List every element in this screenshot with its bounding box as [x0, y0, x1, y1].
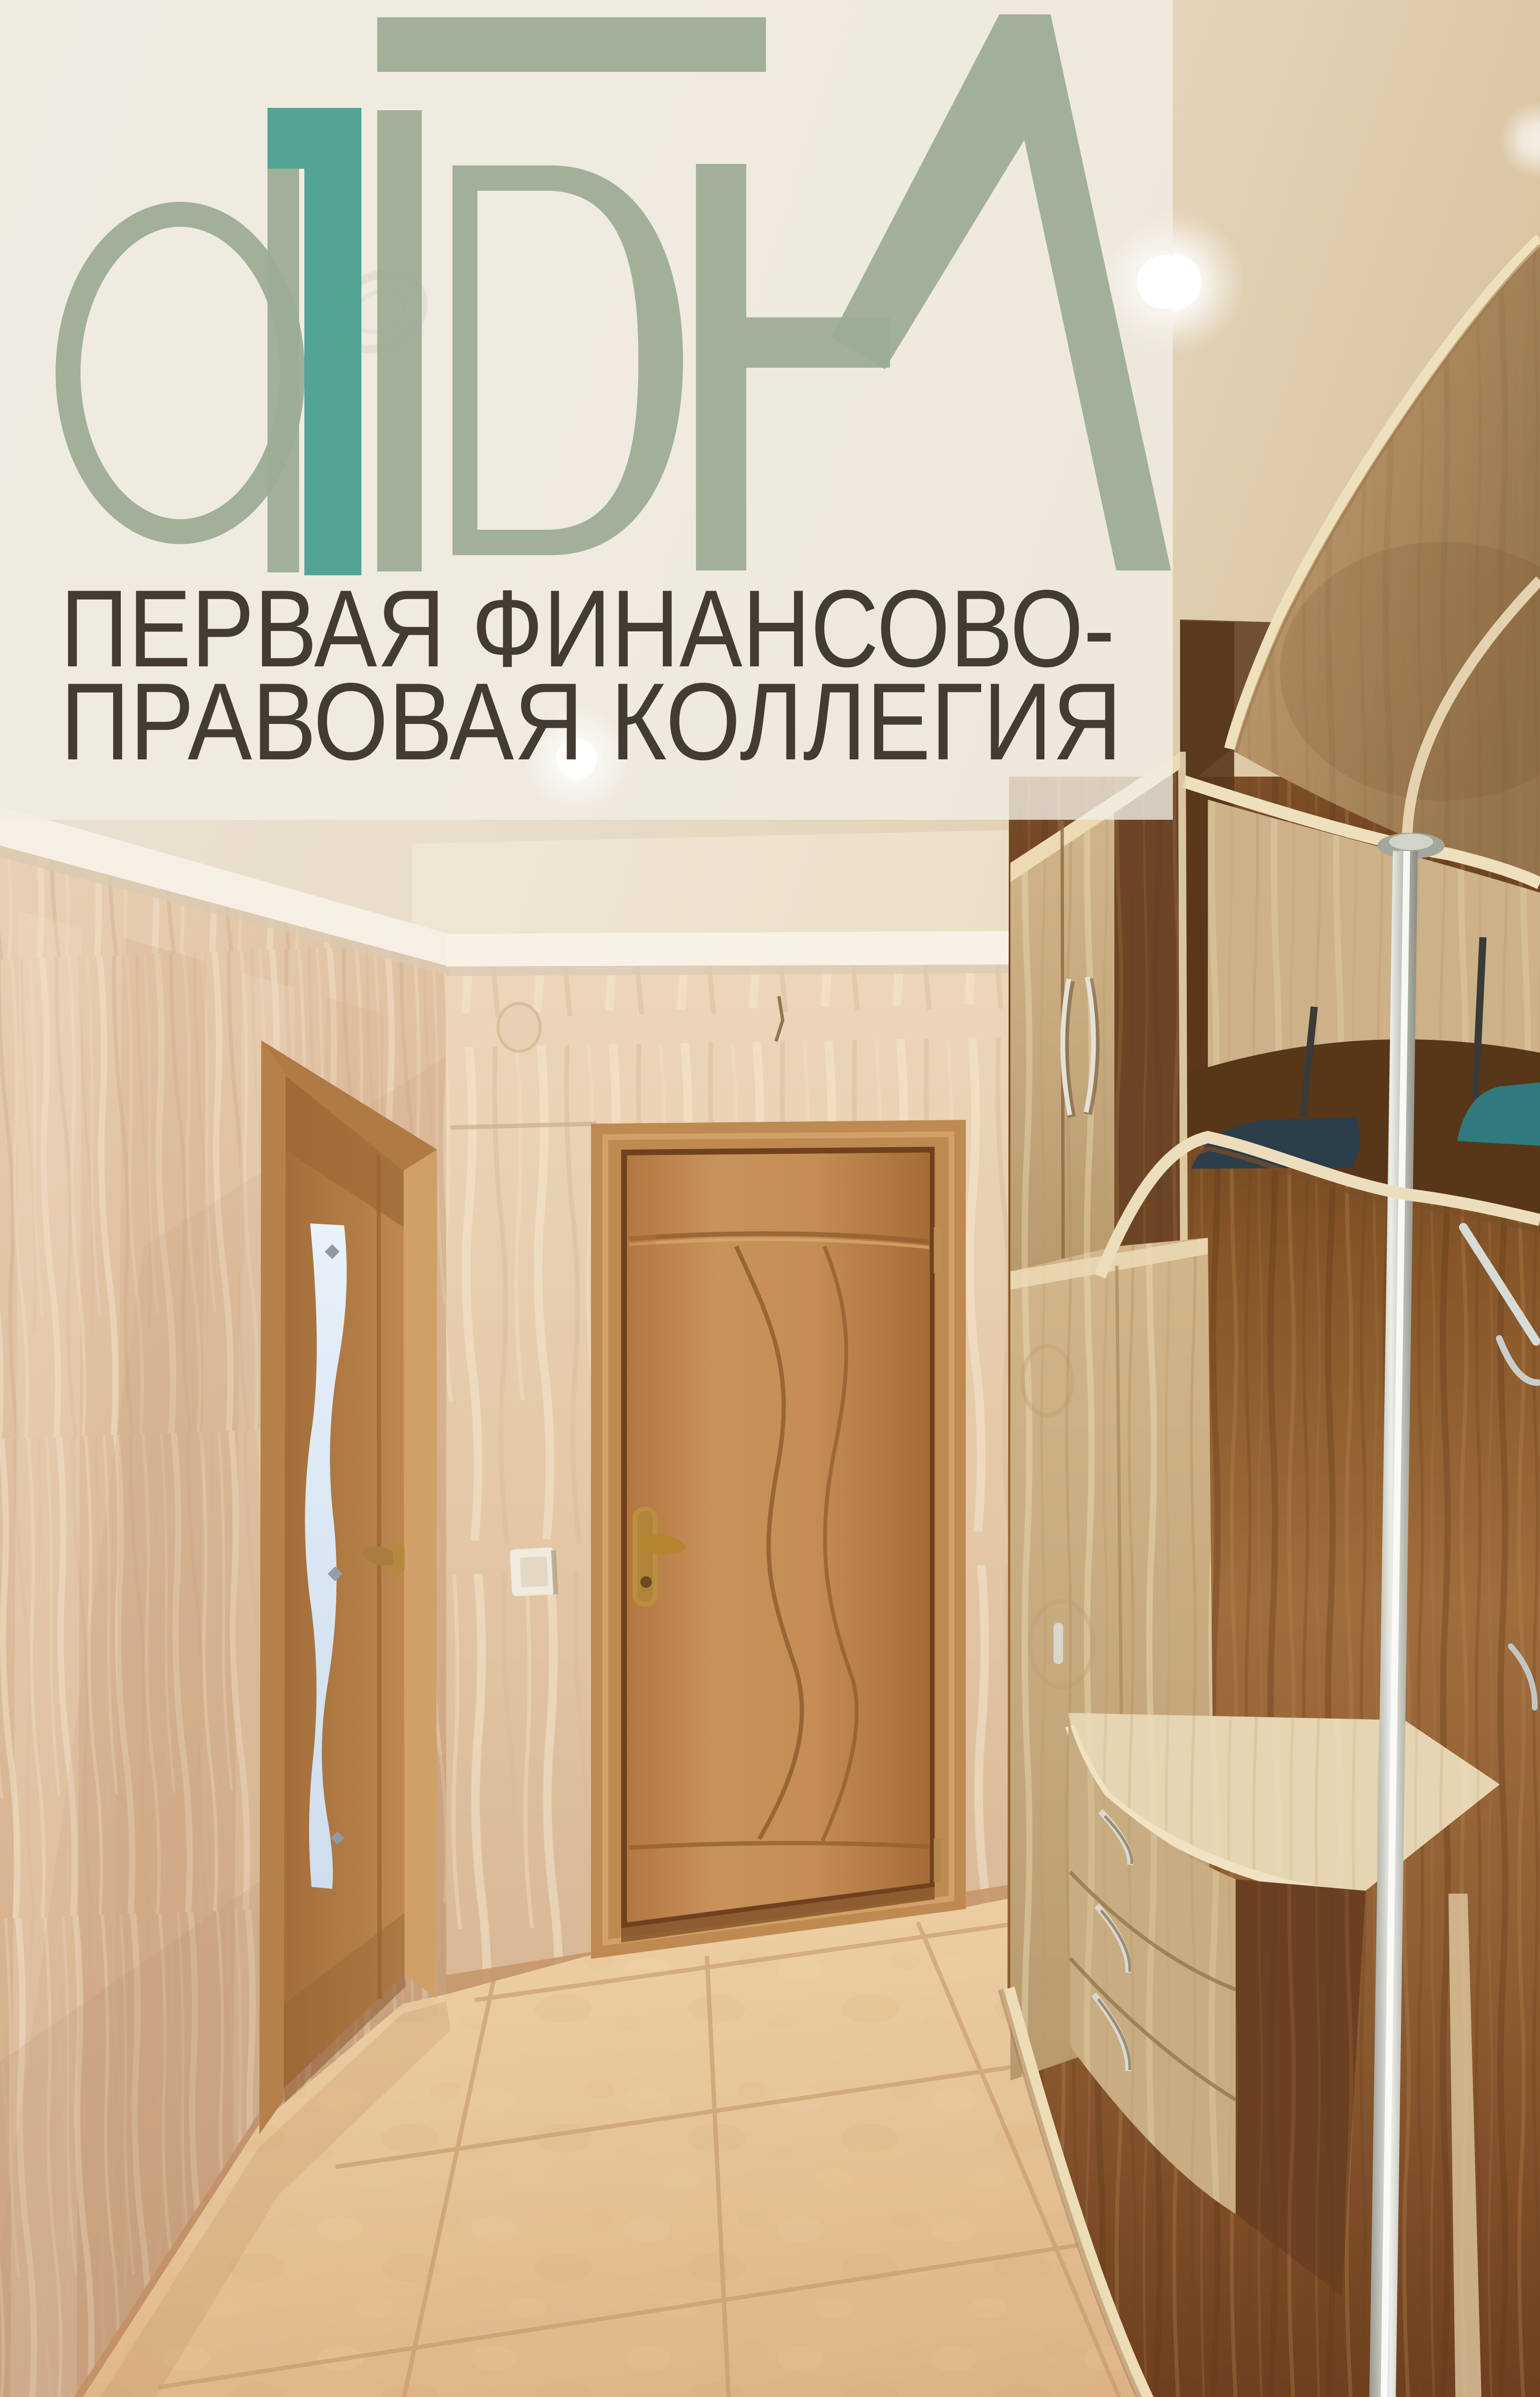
svg-text:ПРАВОВАЯ КОЛЛЕГИЯ: ПРАВОВАЯ КОЛЛЕГИЯ — [60, 660, 1122, 783]
